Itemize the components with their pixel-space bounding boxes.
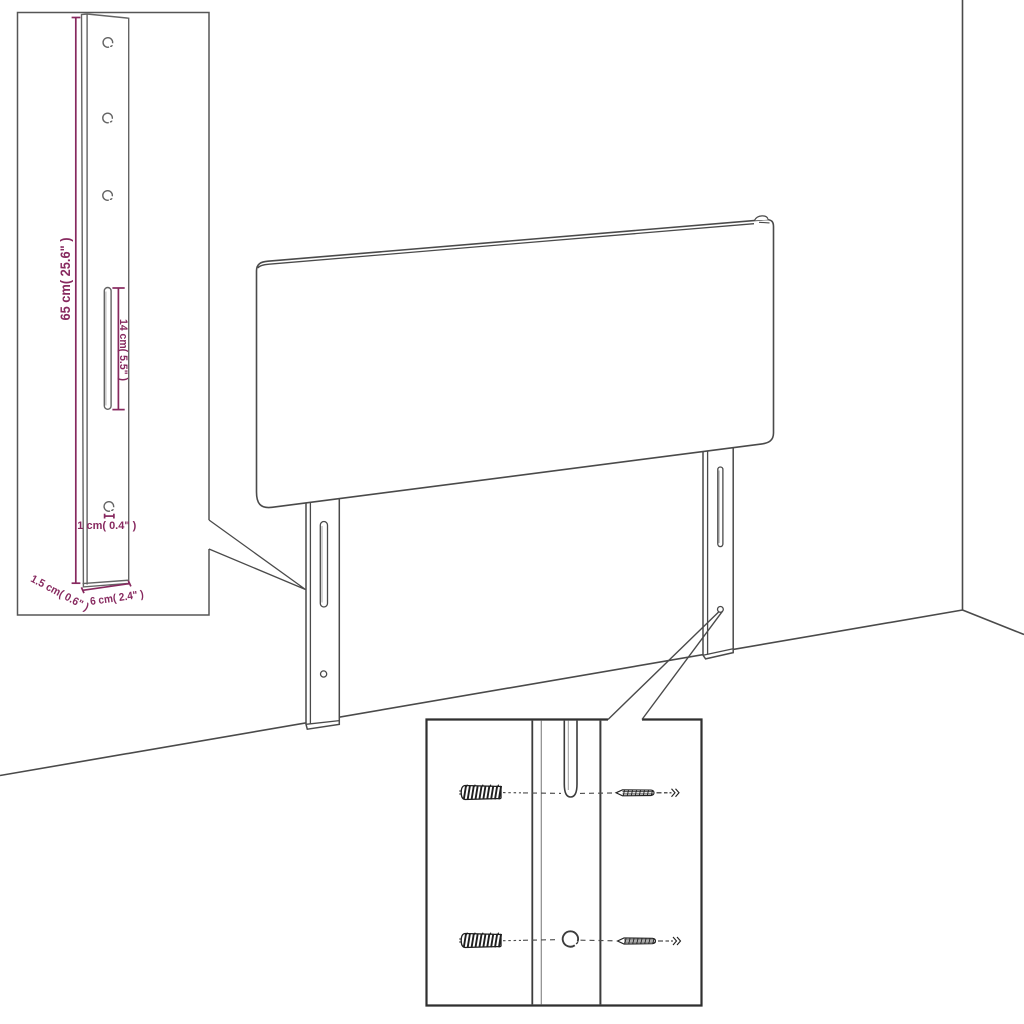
- svg-text:65 cm( 25.6" ): 65 cm( 25.6" ): [57, 238, 73, 321]
- svg-text:1 cm( 0.4" ): 1 cm( 0.4" ): [77, 520, 136, 532]
- svg-text:14 cm( 5.5" ): 14 cm( 5.5" ): [117, 319, 129, 381]
